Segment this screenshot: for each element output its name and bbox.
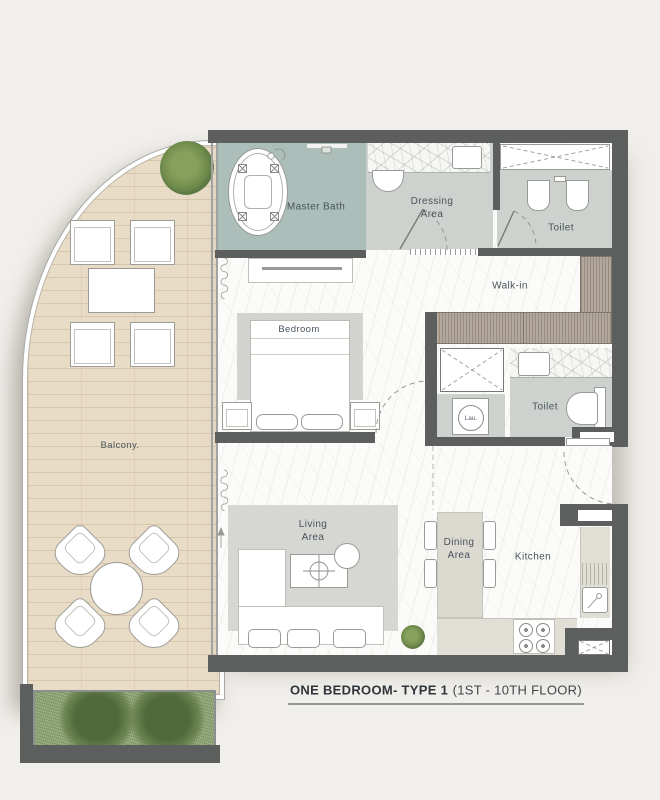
room-label-living: Living Area (299, 518, 328, 544)
burner-icon (536, 623, 550, 637)
room-label-bedroom: Bedroom (278, 324, 319, 336)
wall-niche (578, 510, 612, 521)
dining-chair (424, 559, 437, 588)
floor-plan: Lau. (0, 0, 660, 800)
sofa-cushion (333, 629, 366, 648)
master-toilet-floor (497, 170, 612, 250)
balcony-chair (130, 220, 175, 265)
tv-console (248, 258, 353, 283)
glass-facade (211, 143, 213, 655)
room-label-walk-in: Walk-in (492, 280, 528, 293)
washer-drum-icon: Lau. (458, 405, 484, 431)
cistern (554, 176, 566, 182)
shaft (440, 348, 504, 392)
burner-icon (536, 639, 550, 653)
room-label-toilet-guest: Toilet (532, 401, 558, 414)
balcony-chair (70, 220, 115, 265)
bathtub-base (244, 175, 272, 209)
sink (518, 352, 550, 376)
living-plant (401, 625, 425, 649)
room-label-kitchen: Kitchen (515, 551, 551, 564)
kitchen-counter-bottom (437, 618, 577, 655)
wall (478, 248, 612, 256)
wall (215, 250, 366, 258)
balcony-area (22, 140, 225, 700)
dining-chair (483, 521, 496, 550)
balcony-round-table (90, 562, 143, 615)
shaft (578, 640, 610, 655)
room-label-balcony: Balcony. (101, 440, 140, 452)
tub-jet-icon (238, 212, 247, 221)
dining-chair (483, 559, 496, 588)
toilet-fixture (566, 180, 589, 211)
sofa-cushion (248, 629, 281, 648)
glass-facade (216, 143, 218, 655)
wall (208, 130, 628, 143)
tub-jet-icon (270, 164, 279, 173)
wall (493, 143, 500, 210)
tub-jet-icon (238, 164, 247, 173)
room-label-dressing: Dressing Area (411, 195, 454, 221)
threshold (410, 249, 478, 255)
wardrobe-divider (523, 313, 524, 343)
toilet-fixture (566, 392, 598, 425)
bush (129, 690, 205, 747)
laundry-label: Lau. (465, 415, 478, 422)
blanket-fold (251, 354, 349, 355)
room-label-toilet-master: Toilet (548, 222, 574, 235)
balcony-chair (70, 322, 115, 367)
wall (20, 745, 220, 763)
dining-table (437, 512, 483, 618)
wall (612, 505, 628, 672)
burner-icon (519, 639, 533, 653)
vanity-sink (452, 146, 482, 169)
wardrobe (580, 256, 612, 314)
tub-jet-icon (270, 212, 279, 221)
bush (59, 690, 135, 747)
wall (208, 655, 628, 672)
room-label-dining: Dining Area (444, 536, 475, 562)
wall (612, 143, 628, 447)
kitchen-sink (582, 587, 608, 613)
plan-title-floors: (1ST - 10TH FLOOR) (453, 683, 582, 698)
sofa-cushion (287, 629, 320, 648)
burner-icon (519, 623, 533, 637)
planter-bed (33, 690, 216, 747)
nightstand (222, 402, 252, 430)
tv (262, 267, 342, 270)
plan-title-name: ONE BEDROOM- TYPE 1 (290, 683, 448, 698)
wall (425, 312, 437, 446)
wall (437, 437, 565, 446)
wall (565, 628, 578, 655)
side-table (334, 543, 360, 569)
pillow (301, 414, 343, 430)
plan-title: ONE BEDROOM- TYPE 1 (1ST - 10TH FLOOR) (288, 682, 584, 705)
dining-chair (424, 521, 437, 550)
balcony-chair (130, 322, 175, 367)
drainboard (582, 563, 608, 585)
bidet-fixture (527, 180, 550, 211)
balcony-plant (160, 141, 214, 195)
door-leaf (566, 438, 610, 446)
blanket-fold (251, 338, 349, 339)
nightstand (350, 402, 380, 430)
pillow (256, 414, 298, 430)
wall (215, 432, 375, 443)
room-label-master-bath: Master Bath (287, 201, 345, 214)
balcony-table (88, 268, 155, 313)
linen-closet (500, 144, 610, 170)
